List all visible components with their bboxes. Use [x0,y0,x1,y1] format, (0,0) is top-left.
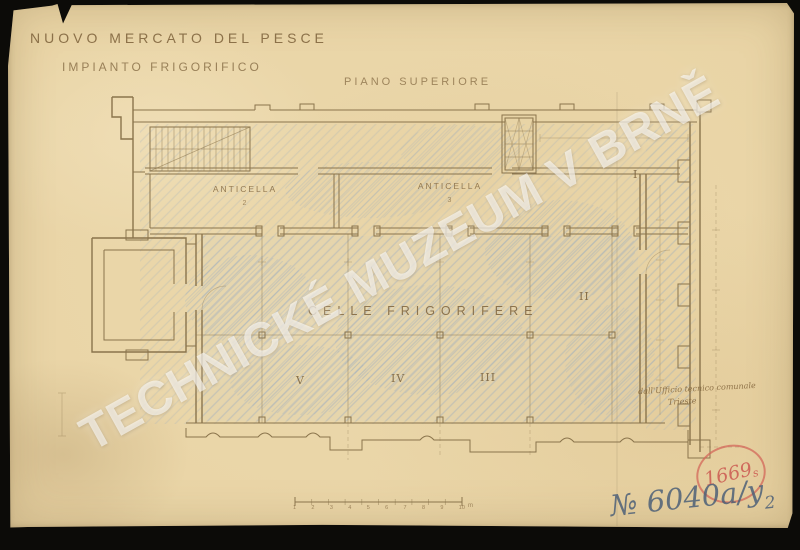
scale-bar-unit: m [468,503,473,509]
scale-tick-label: 1 [293,505,296,511]
cell-label-5: V [296,374,305,387]
scale-tick-label: 7 [404,505,407,511]
handwritten-note-line2: Trieste [668,396,697,406]
drawing-title: NUOVO MERCATO DEL PESCE [30,30,328,46]
cell-label-1: I [633,168,638,181]
cell-label-4: IV [391,372,405,385]
scale-tick-label: 10 [459,505,465,511]
inventory-prefix: № [608,485,648,523]
scale-tick-label: 3 [330,505,333,511]
scale-tick-label: 4 [348,505,351,511]
scale-bar-labels: 12345678910 [293,505,465,511]
cell-label-3: III [480,371,496,384]
cell-label-2: II [579,290,590,303]
scale-tick-label: 2 [311,505,314,511]
room-label-anticella-left: ANTICELLA [200,184,290,194]
scan-background: NUOVO MERCATO DEL PESCE IMPIANTO FRIGORI… [0,0,800,550]
scale-tick-label: 8 [422,505,425,511]
plan-caption: PIANO SUPERIORE [344,76,491,88]
room-number-anticella-left: 2 [200,200,290,207]
drawing-subtitle: IMPIANTO FRIGORIFICO [62,60,262,74]
scale-tick-label: 9 [440,505,443,511]
scale-tick-label: 6 [385,505,388,511]
scale-tick-label: 5 [367,505,370,511]
inventory-subscript: 2 [764,493,777,514]
